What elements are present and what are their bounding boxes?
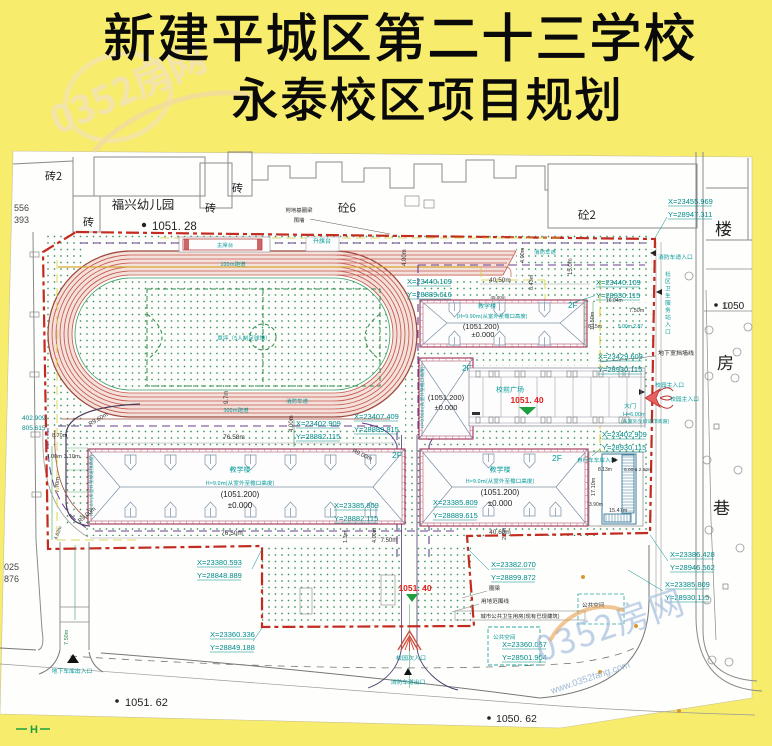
svg-text:Y=28882.115: Y=28882.115 xyxy=(334,514,378,523)
svg-text:16.04m: 16.04m xyxy=(606,298,623,304)
svg-text:7.50m: 7.50m xyxy=(64,629,70,645)
svg-text:X=23402.909: X=23402.909 xyxy=(602,430,647,439)
svg-text:(1051.200): (1051.200) xyxy=(428,393,465,402)
svg-text:10.50m: 10.50m xyxy=(590,311,596,330)
svg-text:X=23380.593: X=23380.593 xyxy=(197,558,242,567)
svg-text:876: 876 xyxy=(4,574,19,584)
svg-text:Y=28882.115: Y=28882.115 xyxy=(296,432,340,441)
svg-text:8.13m: 8.13m xyxy=(598,467,612,473)
svg-text:805.615: 805.615 xyxy=(22,425,46,432)
svg-text:3.90m: 3.90m xyxy=(589,502,603,508)
svg-text:8.70m: 8.70m xyxy=(52,433,68,439)
svg-text:X=23455.969: X=23455.969 xyxy=(668,197,713,206)
svg-text:15.47m: 15.47m xyxy=(609,508,628,514)
svg-text:76.58m: 76.58m xyxy=(223,434,245,441)
svg-text:Y=28889.616: Y=28889.616 xyxy=(407,290,452,299)
svg-text:Y=28849.188: Y=28849.188 xyxy=(210,643,255,652)
svg-text:393: 393 xyxy=(14,215,29,225)
svg-text:1.3m: 1.3m xyxy=(343,530,349,543)
svg-text:X=23386.428: X=23386.428 xyxy=(670,550,715,559)
svg-text:025: 025 xyxy=(4,562,19,572)
svg-text:4.00m: 4.00m xyxy=(520,247,526,263)
svg-text:±0.000: ±0.000 xyxy=(228,501,253,510)
svg-text:2F: 2F xyxy=(392,450,402,460)
svg-text:5.00m 2.60m: 5.00m 2.60m xyxy=(624,467,652,473)
svg-text:±0.000: ±0.000 xyxy=(435,403,458,412)
svg-text:7.50m: 7.50m xyxy=(629,308,645,314)
svg-text:17.10m: 17.10m xyxy=(591,477,597,496)
svg-text:1051. 40: 1051. 40 xyxy=(398,583,431,593)
svg-text:45.00m: 45.00m xyxy=(490,295,505,300)
svg-text:(1051.200): (1051.200) xyxy=(221,490,260,499)
svg-text:Y=28930.115: Y=28930.115 xyxy=(602,443,646,452)
svg-text:Y=28947.311: Y=28947.311 xyxy=(668,210,712,219)
svg-text:2F: 2F xyxy=(552,453,562,463)
svg-text:Y=28501.904: Y=28501.904 xyxy=(502,653,547,662)
svg-text:Y=28930.115: Y=28930.115 xyxy=(598,365,642,374)
svg-text:2F: 2F xyxy=(568,301,577,310)
svg-text:X=23385.809: X=23385.809 xyxy=(433,498,478,507)
svg-text:±0.000: ±0.000 xyxy=(488,499,513,508)
svg-text:7.50m: 7.50m xyxy=(381,538,398,544)
svg-text:Y=28889.615: Y=28889.615 xyxy=(433,511,478,520)
svg-text:X=23402.909: X=23402.909 xyxy=(296,419,341,428)
svg-text:1051. 40: 1051. 40 xyxy=(510,395,543,405)
svg-text:402.909: 402.909 xyxy=(22,415,46,422)
svg-text:Y=28889.815: Y=28889.815 xyxy=(354,425,399,434)
svg-text:76.50m: 76.50m xyxy=(221,530,243,537)
svg-text:±0.000: ±0.000 xyxy=(472,330,495,339)
svg-text:1051. 62: 1051. 62 xyxy=(125,697,168,709)
svg-text:2.8m: 2.8m xyxy=(502,527,508,540)
svg-text:4.00m: 4.00m xyxy=(372,527,378,543)
svg-text:H=6.00m: H=6.00m xyxy=(623,412,646,418)
svg-text:5.00m 2.87: 5.00m 2.87 xyxy=(618,324,643,330)
svg-text:X=23385.809: X=23385.809 xyxy=(334,501,379,510)
svg-text:1050. 62: 1050. 62 xyxy=(496,713,537,725)
svg-text:Y=28899.872: Y=28899.872 xyxy=(491,573,536,582)
svg-text:X=23440.109: X=23440.109 xyxy=(596,278,641,287)
svg-text:556: 556 xyxy=(14,203,29,213)
svg-text:15.0m: 15.0m xyxy=(568,258,574,275)
svg-text:X=23407.409: X=23407.409 xyxy=(354,412,399,421)
svg-text:X=23429.609: X=23429.609 xyxy=(598,352,643,361)
svg-text:1051. 28: 1051. 28 xyxy=(152,221,197,233)
svg-text:7.70m: 7.70m xyxy=(55,477,61,493)
svg-text:X=23440.109: X=23440.109 xyxy=(407,277,452,286)
svg-text:(1051.200): (1051.200) xyxy=(481,488,520,497)
svg-text:4.00m 3.10m: 4.00m 3.10m xyxy=(46,454,80,460)
svg-text:9.7m: 9.7m xyxy=(224,391,230,404)
svg-text:8.43m: 8.43m xyxy=(529,274,535,290)
svg-text:40:50m: 40:50m xyxy=(489,277,511,284)
svg-text:X=23385.809: X=23385.809 xyxy=(665,580,710,589)
svg-text:1050: 1050 xyxy=(722,301,745,312)
svg-text:Y=28848.889: Y=28848.889 xyxy=(197,571,242,580)
svg-text:H: H xyxy=(30,724,38,736)
svg-text:Y=28946.562: Y=28946.562 xyxy=(670,563,715,572)
svg-text:X=23360.336: X=23360.336 xyxy=(210,630,255,639)
svg-text:4.00m: 4.00m xyxy=(402,249,408,266)
svg-text:X=23382.070: X=23382.070 xyxy=(491,560,536,569)
